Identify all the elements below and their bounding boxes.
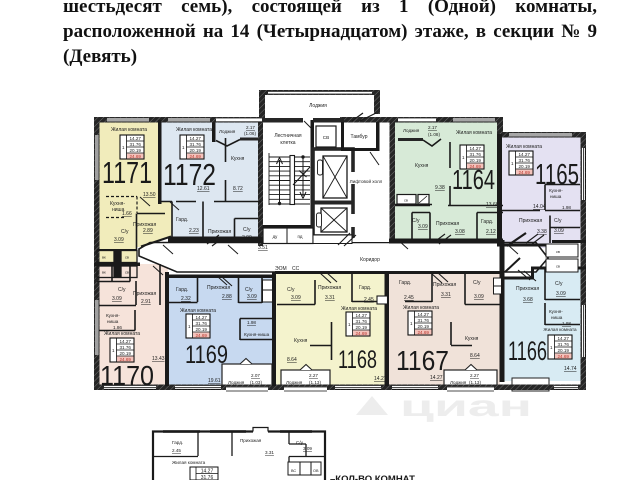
svg-text:св: св [404, 199, 408, 203]
svg-text:12.61: 12.61 [197, 186, 210, 192]
svg-text:1168: 1168 [338, 346, 377, 374]
svg-text:Кухня-: Кухня- [549, 188, 563, 193]
svg-text:(1.08): (1.08) [428, 132, 440, 137]
svg-text:св: св [125, 271, 129, 275]
svg-text:Кухня-: Кухня- [549, 309, 563, 314]
svg-text:вк: вк [102, 256, 106, 260]
svg-text:8.72: 8.72 [233, 186, 243, 192]
svg-text:СВ: СВ [323, 135, 329, 140]
svg-text:1167: 1167 [396, 345, 449, 376]
svg-text:1.98: 1.98 [562, 321, 571, 326]
svg-text:Гард.: Гард. [481, 219, 493, 225]
svg-text:2.23: 2.23 [189, 228, 199, 234]
svg-text:Прихожая: Прихожая [207, 285, 230, 291]
svg-text:3.09: 3.09 [303, 446, 312, 451]
svg-text:ниша: ниша [107, 319, 119, 324]
svg-text:–КОЛ-ВО КОМНАТ: –КОЛ-ВО КОМНАТ [330, 474, 415, 480]
svg-text:ду: ду [273, 234, 279, 239]
svg-text:Гард.: Гард. [359, 285, 371, 291]
svg-text:(1.13): (1.13) [469, 380, 481, 385]
svg-text:2.89: 2.89 [143, 228, 153, 234]
svg-text:Жилая комната: Жилая комната [341, 306, 377, 312]
svg-text:Лестничная: Лестничная [274, 133, 302, 139]
svg-text:Жилая комната: Жилая комната [403, 305, 439, 311]
svg-text:ниша: ниша [551, 315, 563, 320]
svg-text:1169: 1169 [185, 341, 228, 369]
svg-text:св: св [556, 265, 560, 269]
svg-text:С/у: С/у [121, 229, 129, 235]
svg-text:Жилая комната: Жилая комната [172, 460, 206, 465]
svg-text:Лоджия: Лоджия [309, 103, 327, 109]
svg-text:Прихожая: Прихожая [516, 286, 539, 292]
svg-text:1166: 1166 [508, 336, 547, 366]
svg-text:С/у: С/у [555, 281, 563, 287]
svg-text:3.68: 3.68 [523, 297, 533, 303]
svg-text:31.76: 31.76 [201, 475, 214, 480]
svg-text:9.38: 9.38 [435, 185, 445, 191]
svg-text:Лоджия: Лоджия [286, 380, 303, 385]
svg-text:2.17: 2.17 [428, 125, 437, 130]
svg-text:1.98: 1.98 [247, 320, 256, 325]
svg-text:клетка: клетка [280, 140, 295, 146]
svg-text:14.04: 14.04 [533, 204, 546, 210]
svg-text:Кухня: Кухня [231, 156, 245, 162]
svg-text:(1.03): (1.03) [250, 380, 262, 385]
svg-text:14.27: 14.27 [374, 376, 387, 382]
svg-text:Лоджия: Лоджия [450, 380, 467, 385]
svg-text:Кухня: Кухня [465, 336, 479, 342]
svg-text:3.31: 3.31 [441, 292, 451, 298]
svg-text:3.08: 3.08 [455, 229, 465, 235]
svg-text:3.09: 3.09 [291, 295, 301, 301]
svg-text:1170: 1170 [100, 360, 154, 391]
svg-text:(1.06): (1.06) [244, 131, 256, 136]
svg-text:Лоджия: Лоджия [403, 128, 420, 133]
svg-text:3.09: 3.09 [242, 235, 252, 241]
svg-text:Жилая комната: Жилая комната [543, 327, 577, 332]
svg-text:13.66: 13.66 [486, 202, 499, 208]
svg-text:Прихожая: Прихожая [318, 285, 341, 291]
svg-text:св: св [556, 250, 560, 254]
svg-text:2.27: 2.27 [309, 373, 318, 378]
svg-text:Прихожая: Прихожая [240, 438, 262, 443]
svg-text:2.12: 2.12 [486, 229, 496, 235]
svg-text:Гард.: Гард. [176, 217, 188, 223]
svg-text:ОВ: ОВ [313, 469, 319, 473]
svg-text:Прихожая: Прихожая [133, 291, 156, 297]
svg-text:С/у: С/у [287, 287, 295, 293]
svg-text:Прихожая: Прихожая [208, 229, 231, 235]
svg-text:ниша: ниша [550, 194, 562, 199]
svg-text:8.64: 8.64 [470, 353, 480, 359]
svg-text:3.38: 3.38 [537, 229, 547, 235]
svg-text:ВС: ВС [291, 469, 296, 473]
svg-text:Тамбур: Тамбур [351, 134, 368, 140]
svg-text:14.27: 14.27 [430, 375, 443, 381]
svg-text:19.61: 19.61 [208, 378, 221, 384]
svg-text:3.31: 3.31 [325, 295, 335, 301]
svg-text:Кухня-: Кухня- [106, 313, 120, 318]
svg-text:13.50: 13.50 [143, 192, 156, 198]
svg-text:Гард.: Гард. [172, 440, 183, 445]
svg-text:3.31: 3.31 [265, 450, 274, 455]
svg-text:Кухня-ниша: Кухня-ниша [244, 332, 270, 337]
svg-text:С/у: С/у [554, 218, 562, 224]
svg-text:Прихожая: Прихожая [433, 282, 456, 288]
svg-text:2.17: 2.17 [246, 125, 255, 130]
svg-text:2.07: 2.07 [251, 373, 260, 378]
svg-text:Лоджия: Лоджия [219, 129, 236, 134]
svg-text:1.98: 1.98 [562, 205, 571, 210]
svg-text:Жилая комната: Жилая комната [180, 308, 216, 314]
svg-text:пд: пд [298, 234, 303, 239]
svg-text:1165: 1165 [535, 159, 579, 191]
svg-text:2.27: 2.27 [470, 373, 479, 378]
svg-text:14.27: 14.27 [201, 468, 214, 474]
svg-text:СС: СС [292, 266, 300, 272]
svg-text:С/у: С/у [296, 440, 304, 445]
svg-text:2.45: 2.45 [364, 297, 374, 303]
svg-text:3.09: 3.09 [114, 237, 124, 243]
svg-text:ЭОМ: ЭОМ [275, 266, 287, 272]
svg-text:3.09: 3.09 [112, 296, 122, 302]
svg-text:С/у: С/у [473, 280, 481, 286]
svg-text:Прихожая: Прихожая [519, 218, 542, 224]
svg-text:Лоджия: Лоджия [228, 380, 245, 385]
svg-text:Прихожая: Прихожая [436, 221, 459, 227]
svg-text:С/у: С/у [245, 287, 253, 293]
svg-text:14.74: 14.74 [564, 366, 577, 372]
svg-text:С/у: С/у [118, 287, 126, 293]
svg-text:1.86: 1.86 [113, 325, 122, 330]
svg-text:2.45: 2.45 [404, 295, 414, 301]
svg-text:3.09: 3.09 [474, 294, 484, 300]
svg-text:2.88: 2.88 [222, 294, 232, 300]
svg-text:Жилая комната: Жилая комната [104, 331, 140, 337]
svg-text:3.09: 3.09 [554, 228, 564, 234]
svg-text:2.45: 2.45 [172, 448, 181, 453]
svg-text:1.66: 1.66 [122, 211, 132, 217]
svg-text:Жилая комната: Жилая комната [456, 130, 492, 136]
svg-text:8.64: 8.64 [287, 357, 297, 363]
svg-text:(1.13): (1.13) [309, 380, 321, 385]
svg-text:циан: циан [400, 390, 532, 423]
svg-text:Жилая комната: Жилая комната [111, 127, 147, 133]
svg-text:Коридор: Коридор [360, 257, 380, 263]
svg-text:Жилая комната: Жилая комната [506, 144, 542, 150]
svg-text:2.32: 2.32 [181, 296, 191, 302]
svg-text:Кухня: Кухня [415, 163, 429, 169]
svg-text:Жилая комната: Жилая комната [176, 127, 212, 133]
svg-text:3.09: 3.09 [247, 294, 257, 300]
svg-text:1171: 1171 [102, 155, 152, 190]
svg-text:С/у: С/у [243, 227, 251, 233]
svg-text:св: св [125, 256, 129, 260]
svg-text:вк: вк [102, 271, 106, 275]
svg-text:Гард.: Гард. [399, 280, 411, 286]
svg-text:Лифтовой холл: Лифтовой холл [350, 178, 383, 184]
svg-text:Гард.: Гард. [176, 287, 188, 293]
svg-text:Кухня: Кухня [294, 338, 308, 344]
svg-text:3.51: 3.51 [258, 245, 268, 251]
svg-text:2.91: 2.91 [141, 299, 151, 305]
svg-text:13.43: 13.43 [152, 356, 165, 362]
svg-text:3.09: 3.09 [556, 291, 566, 297]
svg-text:3.09: 3.09 [418, 224, 428, 230]
